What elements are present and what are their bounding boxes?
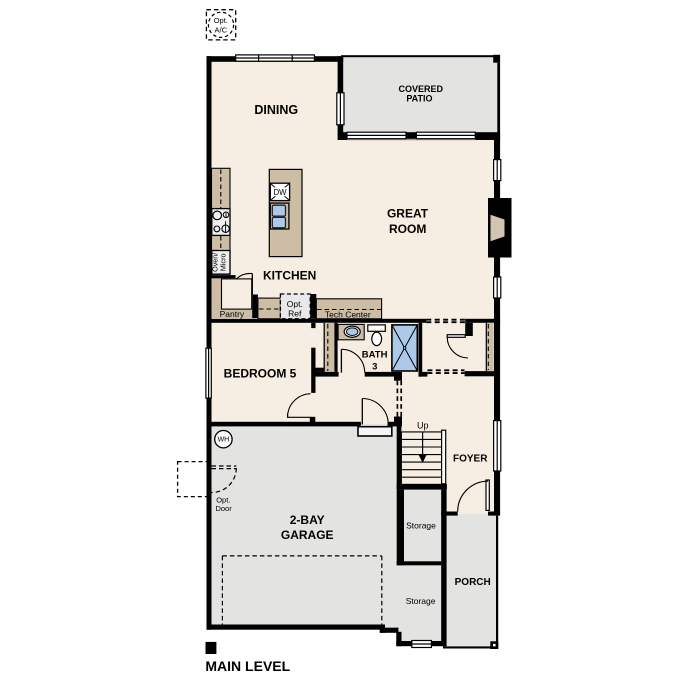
svg-text:A/C: A/C [215,25,228,34]
svg-text:MAIN LEVEL: MAIN LEVEL [205,658,290,674]
svg-text:3: 3 [372,361,377,372]
svg-text:GREAT: GREAT [387,207,429,221]
svg-text:PORCH: PORCH [455,577,491,588]
svg-text:DW: DW [274,188,288,197]
svg-text:BEDROOM 5: BEDROOM 5 [224,367,297,381]
svg-text:BATH: BATH [362,350,388,361]
svg-text:Tech Center: Tech Center [325,310,371,320]
svg-text:2-BAY: 2-BAY [290,513,325,527]
svg-text:Ref: Ref [288,308,302,318]
svg-text:FOYER: FOYER [453,454,488,465]
svg-text:Storage: Storage [406,520,436,530]
svg-text:WH: WH [218,437,230,444]
svg-text:GARAGE: GARAGE [281,528,334,542]
svg-text:KITCHEN: KITCHEN [263,268,316,282]
svg-text:Door: Door [215,504,232,513]
svg-text:ROOM: ROOM [389,222,426,236]
svg-text:Opt.: Opt. [216,495,230,504]
svg-text:Storage: Storage [406,596,436,606]
svg-text:COVERED: COVERED [399,84,444,94]
svg-text:Micro: Micro [219,254,228,272]
svg-text:PATIO: PATIO [406,94,432,104]
svg-text:DINING: DINING [254,103,298,117]
svg-text:Opt.: Opt. [214,16,228,25]
svg-text:Up: Up [417,421,429,431]
svg-text:Pantry: Pantry [220,309,245,319]
